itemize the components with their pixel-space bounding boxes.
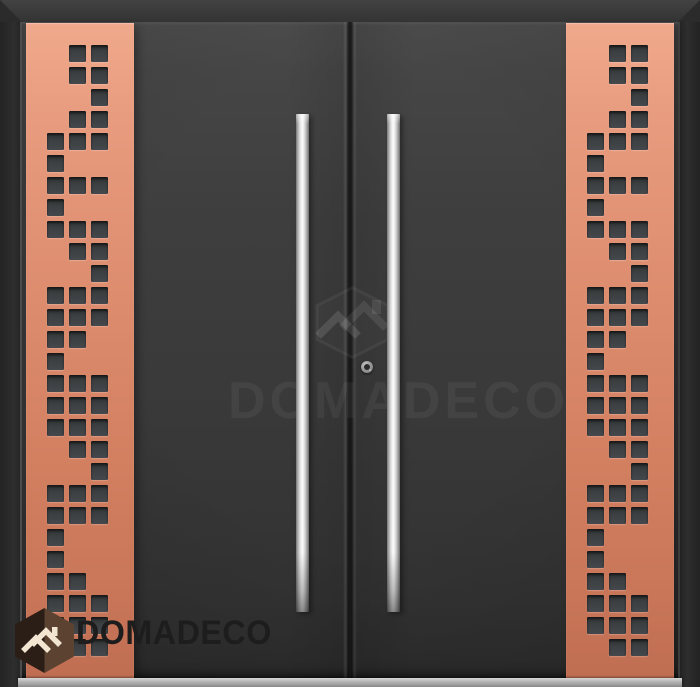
panel-cutout-square — [91, 133, 108, 150]
door-handle-right — [387, 114, 400, 612]
panel-cutout-square — [69, 133, 86, 150]
door-threshold — [18, 678, 682, 687]
panel-cutout-square — [69, 441, 86, 458]
panel-cutout-square — [587, 133, 604, 150]
logo-hexagon-badge-icon — [15, 608, 74, 673]
panel-cutout-square — [587, 287, 604, 304]
keyhole-icon — [361, 361, 373, 373]
logo-brand-text: DOMADECO — [76, 616, 272, 650]
panel-cutout-square — [47, 551, 64, 568]
panel-cutout-square — [69, 67, 86, 84]
panel-cutout-square — [587, 177, 604, 194]
panel-cutout-square — [587, 331, 604, 348]
panel-cutout-square — [91, 243, 108, 260]
panel-cutout-square — [631, 507, 648, 524]
panel-cutout-square — [631, 375, 648, 392]
panel-cutout-square — [631, 243, 648, 260]
panel-cutout-square — [631, 111, 648, 128]
panel-cutout-square — [631, 45, 648, 62]
panel-cutout-square — [69, 331, 86, 348]
panel-cutout-square — [609, 221, 626, 238]
panel-cutout-square — [91, 375, 108, 392]
panel-cutout-square — [91, 507, 108, 524]
panel-cutout-square — [631, 595, 648, 612]
panel-cutout-square — [631, 485, 648, 502]
panel-cutout-square — [587, 507, 604, 524]
panel-cutout-square — [91, 67, 108, 84]
panel-cutout-square — [91, 265, 108, 282]
panel-cutout-square — [609, 639, 626, 656]
panel-cutout-square — [631, 265, 648, 282]
frame-miter-top-left — [0, 0, 22, 22]
panel-cutout-square — [47, 155, 64, 172]
panel-cutout-square — [47, 221, 64, 238]
panel-cutout-square — [587, 397, 604, 414]
panel-cutout-square — [91, 177, 108, 194]
panel-cutout-square — [47, 485, 64, 502]
panel-cutout-square — [609, 375, 626, 392]
panel-cutout-square — [47, 177, 64, 194]
panel-cutout-square — [609, 45, 626, 62]
panel-cutout-square — [587, 551, 604, 568]
panel-cutout-square — [91, 397, 108, 414]
panel-cutout-square — [47, 573, 64, 590]
panel-cutout-square — [587, 595, 604, 612]
panel-cutout-square — [47, 507, 64, 524]
door-frame-right — [678, 22, 700, 687]
keyhole-pin — [369, 369, 371, 371]
logo-roof-chimney — [52, 627, 58, 636]
panel-cutout-square — [69, 111, 86, 128]
panel-cutout-square — [69, 573, 86, 590]
panel-cutout-square — [631, 221, 648, 238]
panel-cutout-square — [631, 309, 648, 326]
panel-cutout-square — [69, 177, 86, 194]
panel-cutout-square — [47, 199, 64, 216]
panel-cutout-square — [631, 397, 648, 414]
brand-logo: DOMADECO — [0, 600, 280, 680]
panel-cutout-square — [609, 485, 626, 502]
panel-cutout-square — [91, 221, 108, 238]
panel-cutout-square — [91, 441, 108, 458]
keyhole-core — [364, 364, 370, 370]
panel-cutout-square — [587, 573, 604, 590]
panel-cutout-square — [69, 221, 86, 238]
panel-cutout-square — [69, 485, 86, 502]
copper-cutout-panel-left — [26, 23, 134, 678]
panel-cutout-square — [47, 419, 64, 436]
panel-cutout-square — [91, 309, 108, 326]
panel-cutout-square — [631, 287, 648, 304]
frame-miter-top-right — [678, 0, 700, 22]
panel-cutout-square — [631, 419, 648, 436]
panel-cutout-square — [587, 155, 604, 172]
panel-cutout-square — [609, 177, 626, 194]
panel-cutout-square — [69, 243, 86, 260]
panel-cutout-square — [631, 441, 648, 458]
double-front-door-product-image: DOMADECO DOMADECO — [0, 0, 700, 687]
panel-cutout-square — [609, 397, 626, 414]
panel-cutout-square — [609, 111, 626, 128]
panel-cutout-square — [609, 287, 626, 304]
panel-cutout-square — [609, 133, 626, 150]
panel-cutout-square — [609, 441, 626, 458]
panel-cutout-square — [587, 419, 604, 436]
door-frame-top — [0, 0, 700, 22]
panel-cutout-square — [609, 595, 626, 612]
panel-cutout-square — [91, 419, 108, 436]
panel-cutout-square — [587, 375, 604, 392]
panel-cutout-square — [91, 485, 108, 502]
door-handle-left — [296, 114, 309, 612]
panel-cutout-square — [587, 221, 604, 238]
panel-cutout-square — [609, 243, 626, 260]
panel-cutout-square — [47, 133, 64, 150]
panel-cutout-square — [47, 397, 64, 414]
panel-cutout-square — [69, 507, 86, 524]
panel-cutout-square — [69, 309, 86, 326]
panel-cutout-square — [69, 419, 86, 436]
panel-cutout-square — [631, 177, 648, 194]
panel-cutout-square — [631, 133, 648, 150]
panel-cutout-square — [631, 617, 648, 634]
panel-cutout-square — [69, 45, 86, 62]
copper-cutout-panel-right — [566, 23, 674, 678]
panel-cutout-square — [47, 375, 64, 392]
panel-cutout-square — [47, 309, 64, 326]
panel-cutout-square — [69, 287, 86, 304]
panel-cutout-square — [631, 639, 648, 656]
panel-cutout-square — [587, 309, 604, 326]
panel-cutout-square — [91, 89, 108, 106]
panel-cutout-square — [631, 89, 648, 106]
panel-cutout-square — [91, 45, 108, 62]
panel-cutout-square — [631, 67, 648, 84]
panel-cutout-square — [609, 419, 626, 436]
panel-cutout-square — [47, 287, 64, 304]
panel-cutout-square — [587, 353, 604, 370]
panel-cutout-square — [609, 331, 626, 348]
door-frame-left — [0, 22, 22, 687]
panel-cutout-square — [631, 463, 648, 480]
panel-cutout-square — [91, 111, 108, 128]
panel-cutout-square — [609, 507, 626, 524]
panel-cutout-square — [69, 375, 86, 392]
panel-cutout-square — [587, 485, 604, 502]
panel-cutout-square — [47, 353, 64, 370]
panel-cutout-square — [609, 309, 626, 326]
panel-cutout-square — [609, 67, 626, 84]
panel-cutout-square — [587, 529, 604, 546]
panel-cutout-square — [91, 463, 108, 480]
panel-cutout-square — [47, 529, 64, 546]
panel-cutout-square — [47, 331, 64, 348]
panel-cutout-square — [587, 199, 604, 216]
panel-cutout-square — [609, 573, 626, 590]
panel-cutout-square — [587, 617, 604, 634]
panel-cutout-square — [69, 397, 86, 414]
panel-cutout-square — [91, 287, 108, 304]
panel-cutout-square — [609, 617, 626, 634]
